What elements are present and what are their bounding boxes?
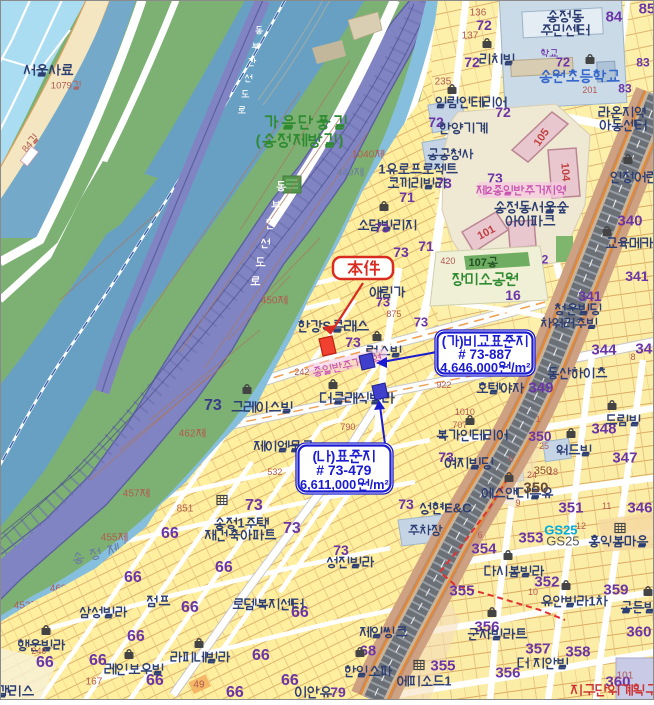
- svg-text:344: 344: [591, 341, 617, 358]
- svg-text:707: 707: [452, 420, 467, 430]
- svg-text:107: 107: [469, 257, 487, 269]
- svg-text:73: 73: [204, 397, 222, 414]
- svg-text:84: 84: [606, 8, 623, 25]
- svg-text:455: 455: [101, 533, 118, 544]
- svg-text:9: 9: [516, 498, 521, 508]
- svg-text:66: 66: [89, 652, 107, 669]
- svg-text:101: 101: [617, 671, 634, 682]
- svg-text:73: 73: [376, 295, 390, 310]
- svg-text:356: 356: [495, 664, 520, 681]
- svg-text:875: 875: [386, 309, 401, 319]
- svg-text:1: 1: [238, 517, 245, 531]
- svg-text:71: 71: [399, 189, 415, 205]
- svg-text:10: 10: [528, 587, 538, 597]
- svg-text:): ): [339, 132, 344, 149]
- svg-text:1: 1: [536, 414, 541, 424]
- svg-text:1040: 1040: [352, 150, 375, 161]
- svg-text:GS25: GS25: [546, 534, 579, 549]
- svg-text:343: 343: [635, 340, 654, 357]
- svg-text:8: 8: [631, 352, 636, 362]
- svg-text:6: 6: [509, 454, 514, 464]
- svg-text:1079: 1079: [51, 80, 72, 91]
- svg-text:73: 73: [393, 244, 409, 260]
- svg-text:72: 72: [495, 104, 511, 120]
- svg-text:16: 16: [505, 287, 521, 303]
- svg-text:104: 104: [558, 162, 572, 182]
- svg-text:355: 355: [430, 657, 455, 674]
- svg-text:358: 358: [565, 643, 590, 660]
- svg-text:/m²: /m²: [370, 477, 389, 492]
- svg-text:6: 6: [478, 530, 483, 540]
- svg-text:66: 66: [127, 628, 145, 645]
- svg-text:83: 83: [636, 55, 650, 69]
- svg-text:71: 71: [418, 238, 434, 254]
- svg-text:73: 73: [345, 334, 361, 350]
- svg-text:24: 24: [527, 470, 537, 480]
- svg-text:1: 1: [589, 595, 596, 609]
- svg-text:2: 2: [486, 185, 492, 197]
- svg-text:73: 73: [414, 315, 428, 330]
- svg-text:360: 360: [626, 623, 651, 640]
- svg-text:450: 450: [261, 296, 278, 307]
- svg-text:11: 11: [602, 501, 611, 511]
- svg-text:349: 349: [528, 379, 553, 396]
- svg-text:85: 85: [639, 0, 654, 17]
- svg-text:66: 66: [161, 525, 179, 542]
- svg-text:352: 352: [534, 573, 559, 590]
- svg-text:73: 73: [245, 497, 263, 514]
- svg-text:341: 341: [625, 268, 649, 284]
- svg-text:851: 851: [177, 504, 194, 515]
- svg-text:72: 72: [556, 55, 570, 70]
- svg-text:346: 346: [627, 499, 652, 516]
- svg-text:25: 25: [539, 441, 549, 451]
- svg-text:356: 356: [474, 618, 499, 635]
- svg-text:357: 357: [525, 640, 550, 657]
- svg-text:340: 340: [617, 212, 642, 229]
- svg-text:73: 73: [375, 221, 389, 236]
- svg-text:420: 420: [440, 256, 455, 266]
- svg-text:66: 66: [124, 569, 142, 586]
- svg-text:201: 201: [582, 85, 597, 95]
- svg-text:4,646,000: 4,646,000: [440, 360, 498, 375]
- svg-text:359: 359: [603, 581, 628, 598]
- svg-text:73: 73: [283, 520, 301, 537]
- svg-text:355: 355: [449, 582, 474, 599]
- svg-text:73: 73: [436, 175, 452, 191]
- svg-text:/m²: /m²: [511, 360, 531, 375]
- svg-text:66: 66: [36, 654, 54, 671]
- svg-text:73: 73: [398, 496, 414, 512]
- svg-text:462: 462: [179, 429, 196, 440]
- svg-text:73: 73: [438, 449, 454, 465]
- svg-text:353: 353: [518, 529, 543, 546]
- svg-text:341: 341: [578, 288, 602, 304]
- svg-text:18: 18: [548, 467, 558, 477]
- svg-text:72: 72: [428, 114, 444, 130]
- svg-text:790: 790: [340, 422, 355, 432]
- svg-text:2: 2: [542, 252, 549, 266]
- svg-text:351: 351: [558, 499, 583, 516]
- svg-text:532: 532: [267, 467, 282, 477]
- svg-text:457: 457: [123, 489, 140, 500]
- svg-text:240: 240: [31, 646, 46, 656]
- svg-text:350: 350: [523, 479, 548, 496]
- svg-text:83: 83: [618, 81, 632, 95]
- svg-text:242: 242: [294, 367, 309, 377]
- svg-text:# 73-479: # 73-479: [316, 462, 371, 478]
- svg-text:6,611,000: 6,611,000: [300, 477, 356, 492]
- svg-text:E&C: E&C: [444, 501, 472, 516]
- svg-text:354: 354: [471, 540, 497, 557]
- svg-text:49: 49: [193, 680, 205, 691]
- svg-text:235: 235: [435, 77, 452, 88]
- svg-text:347: 347: [612, 449, 637, 466]
- svg-text:449: 449: [337, 168, 354, 179]
- svg-text:(: (: [442, 334, 447, 349]
- svg-text:73: 73: [333, 542, 349, 558]
- svg-text:1: 1: [379, 163, 386, 177]
- svg-text:66: 66: [281, 672, 299, 689]
- svg-text:1: 1: [445, 675, 452, 689]
- svg-text:72: 72: [464, 54, 480, 70]
- svg-text:72: 72: [476, 17, 492, 33]
- svg-text:66: 66: [226, 684, 244, 700]
- svg-text:66: 66: [215, 559, 233, 576]
- svg-text:167: 167: [86, 677, 103, 688]
- svg-text:12: 12: [576, 521, 586, 531]
- svg-text:66: 66: [252, 647, 270, 664]
- svg-text:66: 66: [181, 599, 199, 616]
- svg-text:79: 79: [330, 684, 346, 700]
- svg-text:922: 922: [436, 380, 451, 390]
- svg-text:(: (: [256, 132, 261, 149]
